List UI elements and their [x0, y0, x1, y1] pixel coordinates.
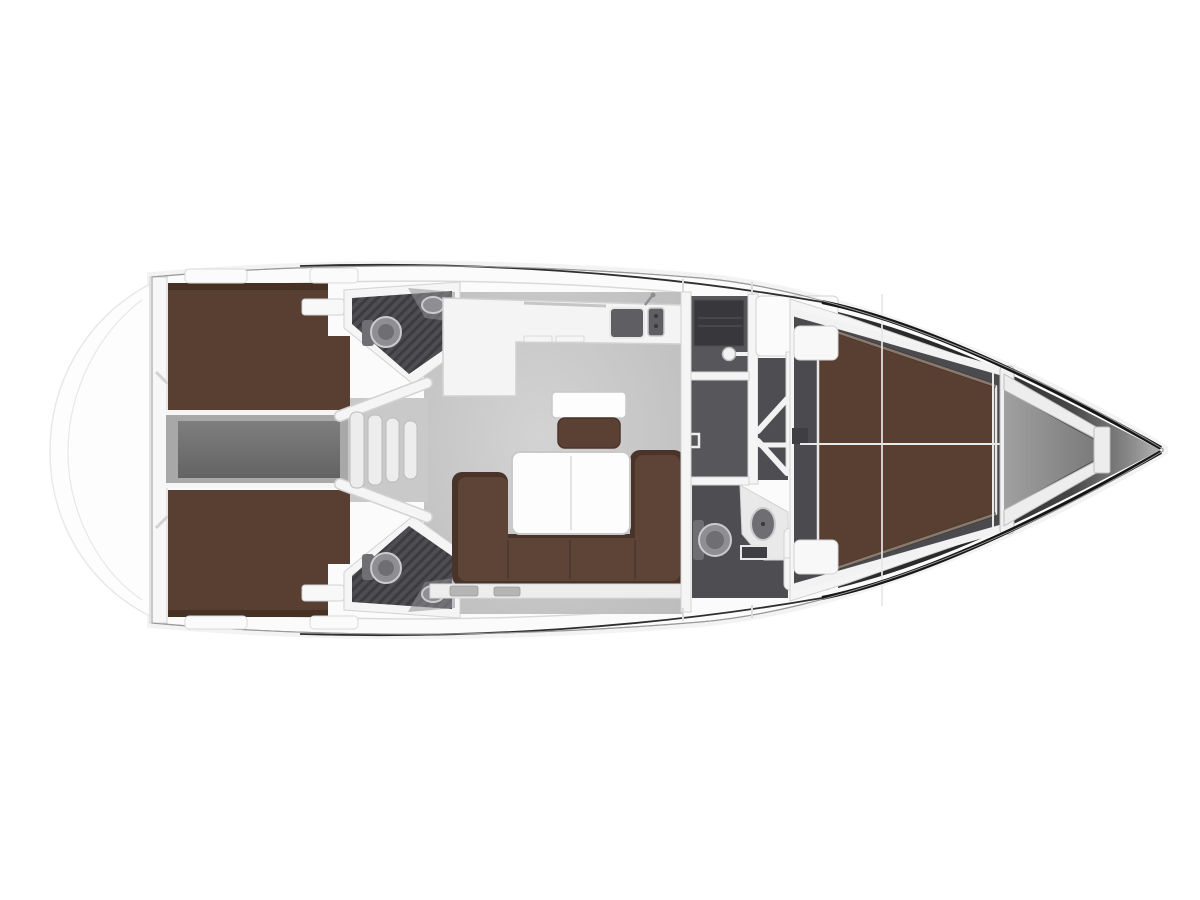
engine-hatch — [178, 421, 340, 478]
swim-platform-shape — [50, 284, 150, 616]
chart-seat — [558, 418, 620, 448]
deck-hatch-top-1 — [185, 269, 247, 283]
step-4 — [404, 421, 417, 479]
yacht-floorplan — [0, 0, 1200, 900]
toilet-bowl — [706, 531, 724, 549]
galley-sink — [610, 308, 644, 338]
chart-table — [552, 392, 626, 418]
wall-divider-top — [691, 372, 749, 380]
stove-knob-2 — [654, 324, 658, 328]
galley-faucet-base — [651, 293, 656, 298]
transom — [150, 277, 168, 623]
locker-inner-face — [1094, 427, 1110, 473]
corridor-floor — [691, 380, 748, 477]
sofa-sill — [430, 584, 685, 598]
shower-tray — [741, 546, 768, 559]
aft-berth-bottom-pillow — [302, 585, 344, 601]
toilet-bowl — [378, 560, 394, 576]
cabin-entry-notch — [792, 428, 808, 444]
swim-platform — [50, 284, 150, 616]
mid-corridor-room — [686, 380, 748, 477]
engine-compartment — [166, 410, 348, 488]
galley-drawer-2 — [556, 336, 584, 342]
galley-stove — [648, 308, 664, 336]
step-2 — [368, 415, 382, 485]
chart-table-area — [552, 392, 626, 448]
deck-hatch-top-2 — [310, 268, 358, 283]
wall-divider-bottom — [691, 477, 749, 485]
toilet-bowl — [378, 324, 394, 340]
sink-icon — [422, 297, 444, 313]
mid-head-shower-room — [691, 296, 753, 380]
shower-counter — [694, 300, 744, 346]
shower-door-handle — [723, 348, 736, 361]
sill-locker-2 — [494, 587, 520, 596]
yacht-floorplan-page — [0, 0, 1200, 900]
aft-cabin-top — [168, 283, 350, 410]
sofa-arm-right — [635, 455, 680, 581]
transom-wall — [150, 277, 167, 623]
cabin-cabinet-top — [794, 326, 838, 360]
deck-hatch-bottom-1 — [185, 616, 247, 629]
aft-cabin-bottom — [168, 490, 350, 617]
cabin-cabinet-bottom — [794, 540, 838, 574]
galley-drawer-1 — [524, 336, 552, 342]
deck-hatch-bottom-2 — [310, 616, 358, 629]
sink-drain — [761, 522, 765, 526]
sill-locker-1 — [450, 586, 478, 596]
forward-cabin — [790, 299, 1012, 601]
stove-knob-1 — [654, 314, 658, 318]
aft-berth-top-pillow — [302, 299, 344, 315]
engine-trim-bottom — [166, 483, 348, 488]
step-3 — [386, 418, 399, 482]
bulkhead-salon — [681, 292, 691, 612]
aft-berth-top-headboard — [168, 283, 328, 290]
salon-table-group — [512, 452, 630, 534]
engine-trim-top — [166, 410, 348, 415]
step-1 — [350, 412, 364, 488]
